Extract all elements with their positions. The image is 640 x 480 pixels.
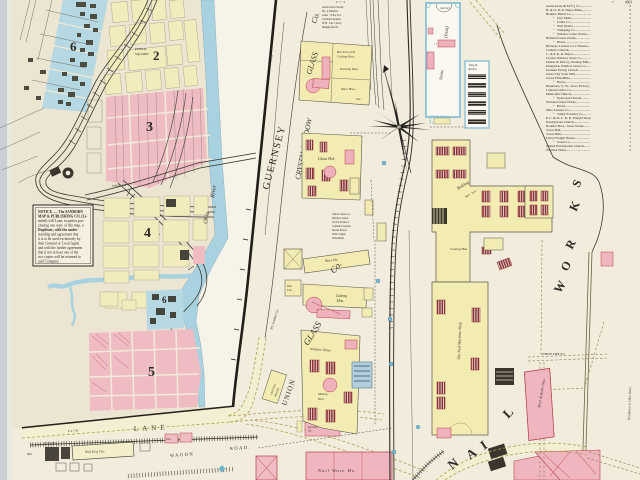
svg-text:Nail Ware Ho.: Nail Ware Ho. bbox=[317, 468, 357, 473]
svg-text:MAP & PUBLISHING CO. (Li-: MAP & PUBLISHING CO. (Li- bbox=[38, 215, 88, 219]
svg-text:6: 6 bbox=[162, 295, 167, 305]
svg-text:Duplicate, with the under-: Duplicate, with the under- bbox=[38, 228, 79, 232]
svg-text:said Company.: said Company. bbox=[38, 260, 59, 264]
svg-text:2: 2 bbox=[153, 48, 160, 63]
svg-text:Sta.: Sta. bbox=[308, 430, 312, 433]
svg-text:two copies will be returned to: two copies will be returned to bbox=[38, 255, 81, 259]
svg-text:that if not at least one of th: that if not at least one of the bbox=[38, 251, 79, 255]
svg-text:Mixing: Mixing bbox=[317, 392, 328, 396]
svg-text:their General or Local Agent: their General or Local Agent bbox=[38, 242, 79, 246]
svg-text:standing and agreement that: standing and agreement that bbox=[38, 233, 78, 237]
svg-text:Hou.: Hou. bbox=[317, 397, 325, 401]
svg-text:Rail: Rail bbox=[26, 452, 32, 456]
svg-text:No. 2 Window: No. 2 Window bbox=[322, 10, 338, 13]
svg-text:Cylinder System: Cylinder System bbox=[322, 18, 342, 21]
svg-text:Ware Hou.: Ware Hou. bbox=[341, 87, 356, 91]
svg-text:PUBLIC: PUBLIC bbox=[135, 47, 148, 51]
svg-text:Bar Iron and: Bar Iron and bbox=[337, 50, 355, 54]
svg-text:Nail Keg Fac.: Nail Keg Fac. bbox=[84, 449, 105, 454]
svg-text:Cylinder System: Cylinder System bbox=[332, 225, 352, 228]
svg-text:Glass Hol.: Glass Hol. bbox=[318, 156, 335, 161]
svg-text:WHITE PIPE ST.: WHITE PIPE ST. bbox=[542, 352, 565, 356]
svg-text:W.H. Lights: W.H. Lights bbox=[332, 233, 346, 236]
svg-text:Union Glass Co.: Union Glass Co. bbox=[332, 213, 351, 216]
svg-text:Iron: Iron bbox=[165, 438, 171, 441]
svg-text:Abrams: Abrams bbox=[467, 68, 477, 71]
svg-text:Packing Hou.: Packing Hou. bbox=[339, 67, 359, 71]
svg-text:Watchman: Watchman bbox=[332, 237, 344, 240]
svg-text:King &: King & bbox=[468, 64, 478, 67]
svg-text:W.H. 1 & 2 Story: W.H. 1 & 2 Story bbox=[322, 22, 342, 25]
svg-text:Aetna Glass Works: Aetna Glass Works bbox=[322, 6, 343, 9]
svg-text:Window Glass: Window Glass bbox=[332, 217, 348, 220]
svg-text:NOTICE. — The SANBORN: NOTICE. — The SANBORN bbox=[38, 210, 83, 214]
svg-text:Cutting Hou.: Cutting Hou. bbox=[337, 55, 355, 59]
svg-text:5: 5 bbox=[148, 365, 155, 380]
svg-text:Glass · 8 Pot Fce: Glass · 8 Pot Fce bbox=[322, 14, 342, 17]
svg-text:3: 3 bbox=[146, 120, 153, 135]
svg-text:Steam Power: Steam Power bbox=[332, 229, 347, 232]
svg-text:Cutting: Cutting bbox=[336, 294, 347, 298]
svg-text:Casting Hou.: Casting Hou. bbox=[450, 247, 468, 251]
svg-text:Fac.: Fac. bbox=[286, 288, 293, 292]
svg-text:Guernsey: Guernsey bbox=[440, 7, 451, 10]
svg-text:Shingle Roofs: Shingle Roofs bbox=[322, 26, 338, 29]
svg-text:Out: Out bbox=[356, 97, 361, 101]
svg-text:Glass Hou.: Glass Hou. bbox=[44, 441, 58, 445]
svg-text:Hou.: Hou. bbox=[336, 299, 344, 303]
svg-text:4 · 7 · 2: 4 · 7 · 2 bbox=[336, 1, 345, 4]
svg-text:4: 4 bbox=[144, 226, 151, 241]
svg-text:it is to be used exclusively b: it is to be used exclusively by bbox=[38, 237, 81, 241]
svg-text:and with the further agreement: and with the further agreement bbox=[38, 246, 82, 250]
svg-text:SQUARE: SQUARE bbox=[135, 52, 149, 56]
svg-text:10 Pot Furnace: 10 Pot Furnace bbox=[332, 221, 350, 224]
svg-text:F A 7 50: F A 7 50 bbox=[68, 428, 79, 433]
svg-text:2: 2 bbox=[629, 148, 631, 152]
